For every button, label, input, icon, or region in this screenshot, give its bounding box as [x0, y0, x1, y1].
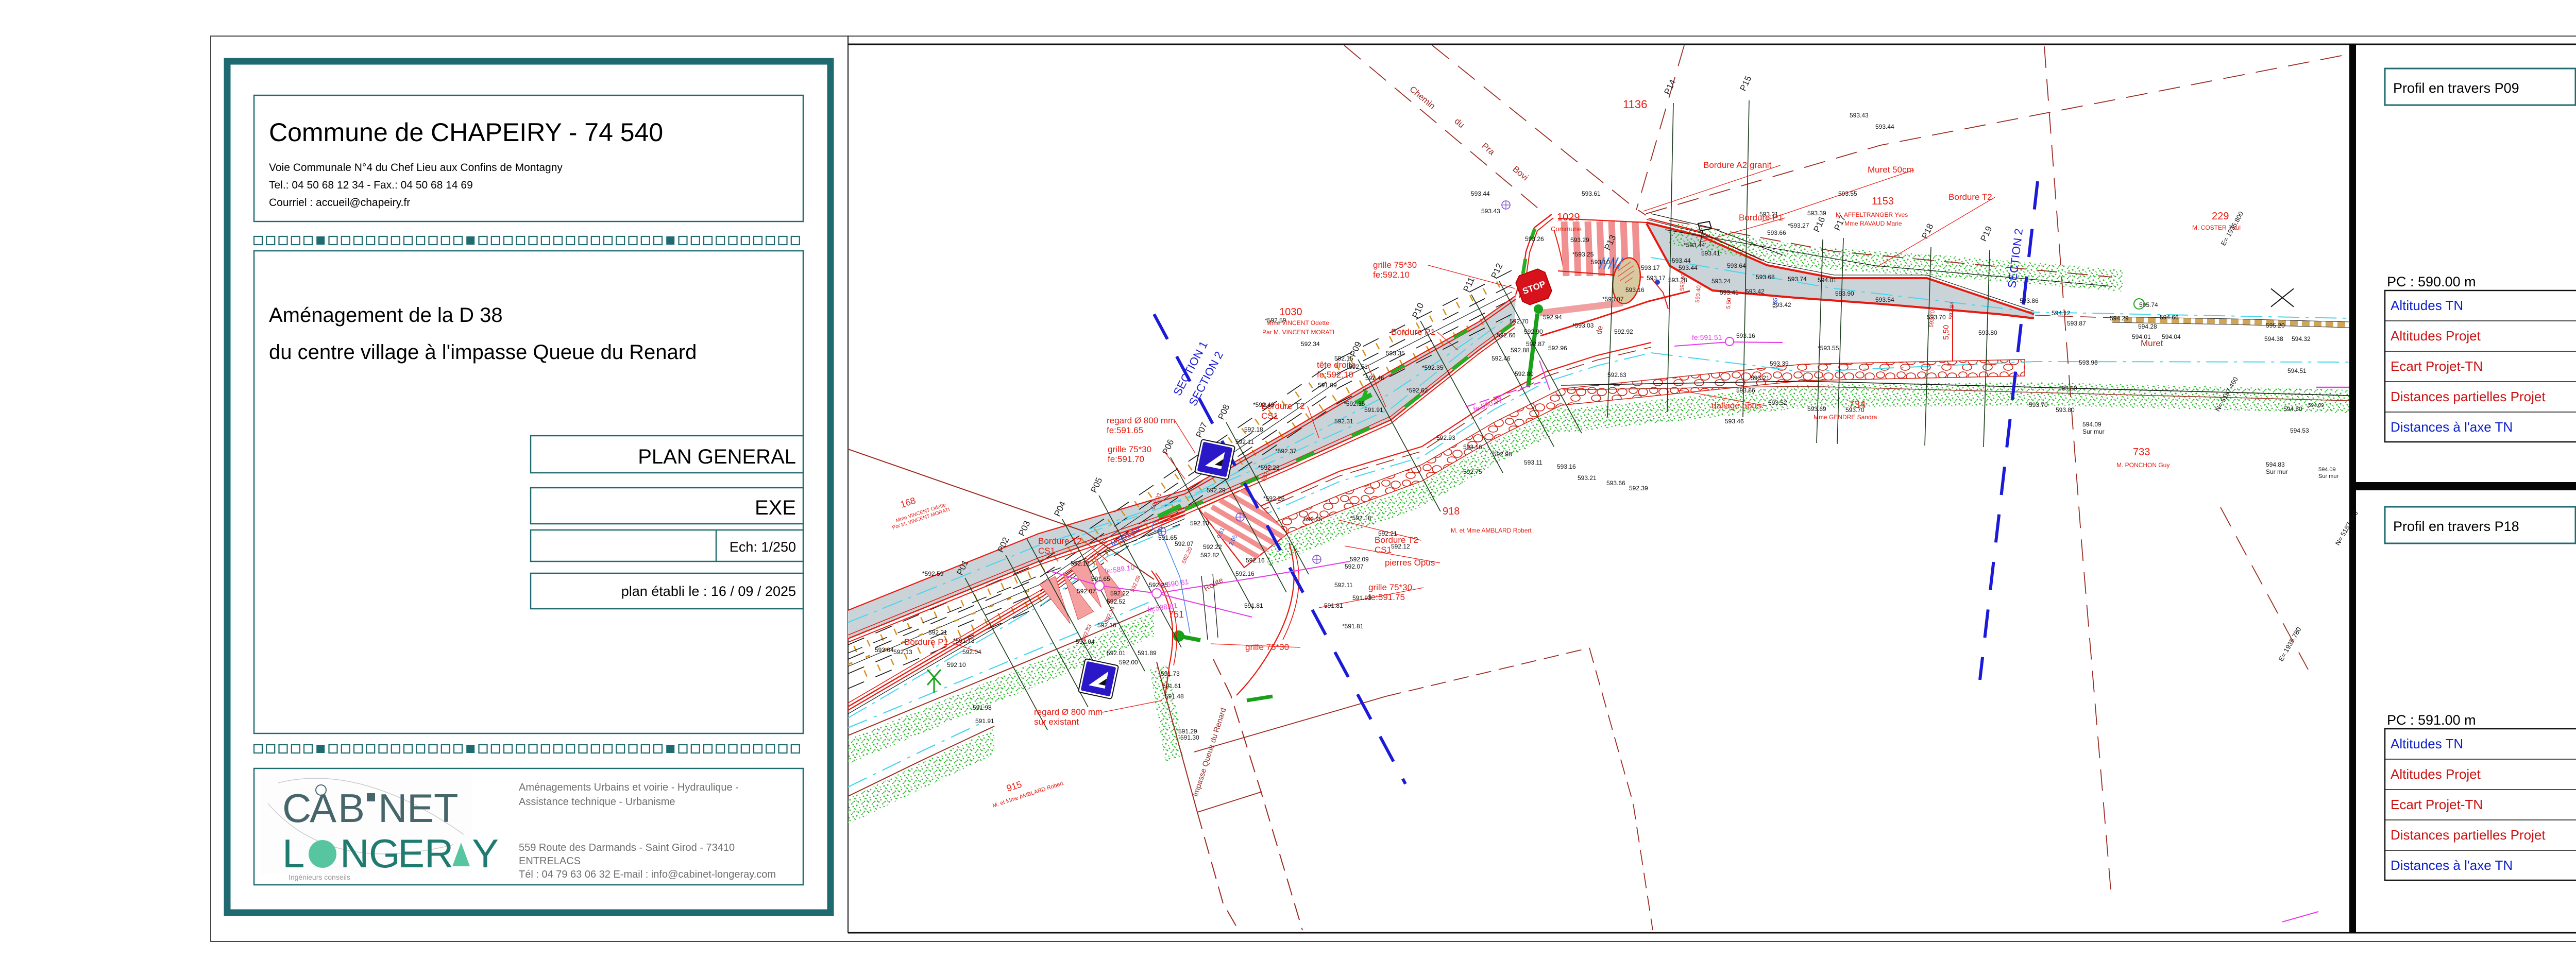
svg-text:Altitudes Projet: Altitudes Projet	[2391, 766, 2481, 782]
svg-text:592.25: 592.25	[1303, 516, 1323, 523]
svg-text:592.18: 592.18	[1244, 426, 1263, 433]
svg-text:Distances à l'axe TN: Distances à l'axe TN	[2391, 419, 2513, 435]
svg-text:Sur mur: Sur mur	[2266, 468, 2288, 475]
svg-text:593.29: 593.29	[1570, 236, 1589, 244]
svg-text:592.64: 592.64	[875, 646, 894, 654]
svg-text:Ingénieurs conseils: Ingénieurs conseils	[289, 873, 350, 881]
svg-text:591.65: 591.65	[1091, 575, 1110, 583]
svg-text:Profil en travers P09: Profil en travers P09	[2393, 80, 2519, 96]
svg-text:592.21: 592.21	[928, 629, 947, 636]
svg-text:592.22: 592.22	[1203, 543, 1222, 551]
svg-text:*591.81: *591.81	[1342, 623, 1364, 630]
svg-text:591.89: 591.89	[1138, 649, 1157, 657]
svg-text:593.41: 593.41	[1701, 250, 1720, 257]
svg-text:591.61: 591.61	[1162, 682, 1181, 690]
svg-text:593.87: 593.87	[2067, 320, 2086, 327]
svg-text:594.66: 594.66	[2160, 314, 2179, 321]
svg-text:733: 733	[2133, 447, 2150, 458]
svg-text:Aménagements Urbains et voirie: Aménagements Urbains et voirie - Hydraul…	[519, 782, 739, 793]
svg-text:E: E	[398, 831, 425, 876]
svg-text:1.65: 1.65	[1772, 298, 1779, 309]
svg-text:593.41: 593.41	[1720, 289, 1739, 296]
svg-text:Bordure T2: Bordure T2	[1038, 536, 1082, 546]
svg-text:592.11: 592.11	[1235, 438, 1254, 446]
svg-text:Distances à l'axe TN: Distances à l'axe TN	[2391, 858, 2513, 873]
svg-text:Bordure A2 granit: Bordure A2 granit	[1703, 160, 1772, 170]
svg-text:593.11: 593.11	[1524, 459, 1543, 466]
svg-text:593.66: 593.66	[1606, 480, 1625, 487]
svg-text:591.89: 591.89	[1318, 382, 1337, 389]
svg-text:Altitudes TN: Altitudes TN	[2391, 736, 2463, 751]
svg-text:593.16: 593.16	[1625, 286, 1645, 294]
svg-text:593.70: 593.70	[1845, 406, 1865, 414]
svg-text:Altitudes TN: Altitudes TN	[2391, 298, 2463, 313]
svg-text:591.81: 591.81	[1324, 602, 1343, 609]
svg-text:751: 751	[1168, 609, 1184, 620]
svg-text:G: G	[369, 831, 400, 876]
svg-text:592.07: 592.07	[1175, 540, 1194, 547]
svg-text:B: B	[338, 785, 365, 831]
svg-text:592.96: 592.96	[1548, 345, 1567, 352]
svg-text:591.81: 591.81	[1244, 602, 1263, 609]
svg-text:*591.73: *591.73	[953, 637, 975, 644]
svg-text:594.83: 594.83	[2266, 461, 2285, 468]
svg-text:593.16: 593.16	[1557, 463, 1576, 470]
svg-text:Mme GENDRE Sandra: Mme GENDRE Sandra	[1814, 414, 1877, 421]
svg-text:593.17: 593.17	[1641, 264, 1660, 271]
svg-text:PC : 591.00 m: PC : 591.00 m	[2387, 712, 2476, 728]
svg-text:594.09: 594.09	[2318, 467, 2336, 473]
svg-text:EXE: EXE	[755, 496, 796, 519]
svg-text:593.44: 593.44	[1471, 190, 1490, 197]
svg-text:fe:591.51: fe:591.51	[1692, 333, 1722, 341]
svg-text:591.98: 591.98	[973, 704, 992, 711]
svg-text:*593.55: *593.55	[1818, 345, 1839, 352]
svg-text:592.98: 592.98	[1493, 451, 1512, 458]
svg-text:*592.49: *592.49	[1253, 401, 1275, 408]
svg-text:Assistance technique - Urbanis: Assistance technique - Urbanisme	[519, 796, 675, 808]
svg-text:1136: 1136	[1623, 98, 1647, 111]
svg-text:594.50: 594.50	[2283, 405, 2302, 413]
svg-text:593.54: 593.54	[1875, 296, 1894, 303]
svg-text:Profil en travers P18: Profil en travers P18	[2393, 519, 2519, 534]
svg-text:592.10: 592.10	[1071, 560, 1090, 567]
svg-text:594.51: 594.51	[2287, 367, 2307, 374]
svg-text:*592.35: *592.35	[1422, 364, 1444, 371]
svg-text:594.32: 594.32	[2292, 335, 2311, 343]
svg-text:fe:592.10: fe:592.10	[1317, 370, 1353, 380]
svg-text:595.74: 595.74	[2139, 301, 2158, 309]
svg-text:593.70: 593.70	[2029, 401, 2048, 408]
svg-text:593.44: 593.44	[1875, 123, 1894, 130]
svg-text:CS1: CS1	[1038, 546, 1055, 556]
svg-text:grille 75*30: grille 75*30	[1245, 642, 1289, 652]
svg-text:592.07: 592.07	[1077, 588, 1096, 595]
svg-text:593.89: 593.89	[2058, 385, 2077, 392]
svg-text:593.43: 593.43	[1481, 208, 1500, 215]
svg-text:592.63: 592.63	[1607, 371, 1626, 379]
svg-text:Sur mur: Sur mur	[2318, 473, 2338, 480]
svg-text:fe:591.65: fe:591.65	[1107, 425, 1143, 435]
svg-text:594.29: 594.29	[2110, 315, 2129, 322]
svg-text:593.66: 593.66	[1736, 387, 1755, 394]
svg-text:593.86: 593.86	[2020, 297, 2039, 304]
svg-text:593.61: 593.61	[1582, 190, 1601, 197]
svg-text:592.46: 592.46	[1365, 374, 1384, 382]
svg-text:plan établi le : 16 / 09 / 20: plan établi le : 16 / 09 / 2025	[621, 584, 796, 599]
svg-text:T: T	[434, 785, 459, 831]
svg-text:592.00: 592.00	[1119, 659, 1138, 666]
svg-text:de: de	[1595, 325, 1605, 335]
svg-text:Bordure P1: Bordure P1	[1391, 327, 1435, 337]
svg-text:E: E	[407, 785, 434, 831]
svg-text:593.64: 593.64	[1727, 262, 1746, 269]
svg-text:593.52: 593.52	[1768, 399, 1787, 406]
svg-text:592.31: 592.31	[1334, 418, 1353, 425]
svg-text:Ecart Projet-TN: Ecart Projet-TN	[2391, 797, 2483, 812]
svg-text:*593.25: *593.25	[1572, 251, 1594, 258]
svg-text:229: 229	[2212, 211, 2229, 222]
svg-text:Distances partielles Projet: Distances partielles Projet	[2391, 827, 2546, 843]
svg-text:Sur mur: Sur mur	[2082, 428, 2105, 435]
svg-text:593.21: 593.21	[1759, 211, 1778, 218]
svg-text:L: L	[282, 831, 304, 876]
svg-text:regard Ø 800 mm: regard Ø 800 mm	[1107, 416, 1175, 425]
svg-text:*592.59: *592.59	[922, 570, 944, 577]
svg-text:593.44: 593.44	[1672, 257, 1691, 264]
svg-text:regard Ø 800 mm: regard Ø 800 mm	[1034, 707, 1103, 717]
svg-text:fe:591.70: fe:591.70	[1108, 454, 1144, 464]
svg-text:Voie Communale N°4 du Chef Lie: Voie Communale N°4 du Chef Lieu aux Conf…	[269, 162, 563, 174]
svg-text:593.21: 593.21	[1751, 374, 1770, 382]
svg-text:594.01: 594.01	[1818, 277, 1837, 284]
svg-text:593.26: 593.26	[1525, 235, 1544, 243]
svg-text:N: N	[340, 831, 369, 876]
svg-text:594.53: 594.53	[2290, 427, 2309, 434]
svg-text:Mme RAVAUD Marie: Mme RAVAUD Marie	[1844, 220, 1902, 227]
svg-text:592.21: 592.21	[1378, 530, 1397, 537]
svg-text:592.29: 592.29	[1207, 487, 1226, 494]
svg-text:592.11: 592.11	[1334, 581, 1353, 589]
svg-text:Y: Y	[472, 831, 499, 876]
svg-text:grille 75*30: grille 75*30	[1108, 444, 1151, 454]
svg-text:Altitudes Projet: Altitudes Projet	[2391, 328, 2481, 344]
svg-text:592.88: 592.88	[1511, 347, 1530, 354]
svg-text:592.66: 592.66	[1497, 332, 1516, 339]
svg-text:592.01: 592.01	[1107, 649, 1126, 657]
svg-text:592.22: 592.22	[1110, 590, 1129, 597]
svg-text:594.01: 594.01	[2132, 333, 2151, 340]
svg-text:594.12: 594.12	[2052, 310, 2071, 317]
svg-text:Muret 50cm: Muret 50cm	[1868, 165, 1914, 175]
svg-text:592.09: 592.09	[1350, 556, 1369, 563]
svg-text:Par M. VINCENT MORATI: Par M. VINCENT MORATI	[1262, 329, 1334, 336]
svg-text:592.34: 592.34	[1301, 340, 1320, 348]
svg-text:M. et Mme AMBLARD Robert: M. et Mme AMBLARD Robert	[1451, 527, 1532, 534]
svg-text:593.10: 593.10	[1591, 259, 1610, 266]
svg-text:Distances partielles Projet: Distances partielles Projet	[2391, 389, 2546, 404]
svg-text:593.55: 593.55	[1838, 190, 1857, 197]
svg-text:du centre village à l'impasse: du centre village à l'impasse Queue du R…	[269, 341, 697, 364]
svg-text:594.09: 594.09	[2308, 403, 2324, 408]
svg-text:592.16: 592.16	[1246, 557, 1265, 564]
svg-text:593.17: 593.17	[1647, 275, 1666, 282]
svg-text:592.80: 592.80	[1515, 370, 1534, 378]
svg-text:*592.37: *592.37	[1275, 448, 1297, 455]
svg-text:592.90: 592.90	[1524, 328, 1543, 335]
svg-text:593.96: 593.96	[2079, 359, 2098, 366]
svg-text:592.93: 592.93	[1436, 434, 1455, 441]
svg-text:593.68: 593.68	[1756, 273, 1775, 281]
svg-text:*593.07: *593.07	[1602, 296, 1624, 303]
svg-text:593.21: 593.21	[1578, 474, 1597, 482]
svg-text:sur existant: sur existant	[1034, 717, 1079, 727]
svg-text:*593.27: *593.27	[1788, 222, 1809, 229]
svg-text:593.90: 593.90	[1835, 290, 1854, 297]
svg-text:PC : 590.00 m: PC : 590.00 m	[2387, 274, 2476, 289]
svg-text:594.28: 594.28	[2138, 323, 2157, 330]
svg-text:592.70: 592.70	[1510, 318, 1529, 325]
svg-text:M. AFFELTRANGER Yves: M. AFFELTRANGER Yves	[1836, 211, 1908, 218]
svg-text:593.39: 593.39	[1770, 360, 1789, 367]
svg-text:591.30: 591.30	[1180, 734, 1199, 741]
svg-text:ENTRELACS: ENTRELACS	[519, 855, 581, 867]
svg-text:1153: 1153	[1872, 196, 1894, 207]
svg-text:592.10: 592.10	[947, 661, 966, 669]
svg-text:Ech: 1/250: Ech: 1/250	[730, 539, 796, 555]
svg-text:*593.44: *593.44	[1684, 242, 1705, 249]
svg-text:593.80: 593.80	[2056, 406, 2075, 414]
svg-text:918: 918	[1443, 506, 1460, 517]
svg-text:M. PONCHON Guy: M. PONCHON Guy	[2116, 461, 2170, 469]
svg-text:592.92: 592.92	[1614, 328, 1633, 335]
svg-text:PLAN GENERAL: PLAN GENERAL	[638, 446, 796, 468]
svg-text:592.46: 592.46	[1492, 355, 1511, 362]
svg-text:*593.03: *593.03	[1572, 322, 1594, 329]
svg-text:Aménagement de la D 38: Aménagement de la D 38	[269, 304, 503, 327]
svg-text:593.35: 593.35	[1386, 350, 1405, 357]
svg-text:5.50: 5.50	[1725, 298, 1733, 309]
svg-text:594.09: 594.09	[2082, 421, 2102, 428]
svg-text:1029: 1029	[1557, 212, 1580, 223]
svg-text:5,50: 5,50	[1942, 325, 1951, 340]
svg-text:CS1: CS1	[1261, 411, 1278, 421]
svg-text:593.39: 593.39	[1807, 210, 1826, 217]
svg-text:Bordure T2: Bordure T2	[1948, 192, 1992, 202]
svg-text:Tel.: 04 50 68 12 34 - Fax.:: Tel.: 04 50 68 12 34 - Fax.: 04 50 68 14…	[269, 179, 473, 191]
svg-text:CS1: CS1	[1375, 545, 1392, 555]
svg-text:593.46: 593.46	[1725, 418, 1744, 425]
svg-text:A: A	[310, 785, 336, 831]
svg-text:Commune de CHAPEIRY - 74 540: Commune de CHAPEIRY - 74 540	[269, 118, 663, 147]
svg-text:Ecart Projet-TN: Ecart Projet-TN	[2391, 358, 2483, 374]
svg-text:592.82: 592.82	[1200, 552, 1219, 559]
svg-text:592.94: 592.94	[1543, 314, 1562, 321]
svg-text:grille 75*30: grille 75*30	[1373, 260, 1417, 270]
svg-text:Bordure P1: Bordure P1	[904, 637, 948, 647]
svg-text:591.91: 591.91	[975, 717, 994, 725]
svg-text:C: C	[282, 785, 311, 831]
svg-text:594.04: 594.04	[2162, 333, 2181, 340]
svg-text:593.80: 593.80	[1978, 329, 1997, 336]
svg-text:594.38: 594.38	[2264, 335, 2283, 343]
svg-text:Tél : 04 79 63 06 32 E-mail: Tél : 04 79 63 06 32 E-mail : info@cabin…	[519, 869, 776, 880]
svg-text:591.91: 591.91	[1364, 406, 1383, 414]
svg-text:593.24: 593.24	[1711, 278, 1731, 285]
svg-text:593.74: 593.74	[1788, 276, 1807, 283]
svg-text:592.39: 592.39	[1629, 485, 1648, 492]
svg-text:592.75: 592.75	[1463, 468, 1482, 475]
svg-text:559 Route des Darmands - Saint: 559 Route des Darmands - Saint Girod - 7…	[519, 842, 735, 853]
svg-text:dallage opus: dallage opus	[1711, 401, 1761, 410]
svg-text:593.42: 593.42	[1745, 288, 1765, 295]
svg-text:593.16: 593.16	[1736, 332, 1755, 339]
svg-text:592.13: 592.13	[893, 648, 912, 656]
svg-text:*592.59: *592.59	[1265, 317, 1286, 324]
svg-text:593.69: 593.69	[1807, 405, 1826, 413]
svg-text:592.07: 592.07	[1345, 563, 1364, 570]
svg-text:591.73: 591.73	[1161, 670, 1180, 677]
svg-text:*592.35: *592.35	[1344, 400, 1365, 407]
svg-text:*592.18: *592.18	[1350, 515, 1371, 522]
svg-text:593.43: 593.43	[1850, 112, 1869, 119]
svg-text:N: N	[378, 785, 407, 831]
svg-text:591.93: 591.93	[1352, 594, 1371, 602]
svg-text:1030: 1030	[1279, 306, 1302, 318]
svg-text:592.25: 592.25	[1149, 581, 1168, 589]
svg-text:592.52: 592.52	[1107, 598, 1126, 605]
svg-text:Courriel : accueil@chapeiry.fr: Courriel : accueil@chapeiry.fr	[269, 197, 410, 209]
svg-text:fe:592.10: fe:592.10	[1373, 270, 1410, 280]
svg-text:592.10: 592.10	[1190, 520, 1209, 527]
svg-text:592.16: 592.16	[1235, 570, 1255, 577]
svg-text:R: R	[425, 831, 453, 876]
svg-text:592.04: 592.04	[962, 648, 981, 656]
svg-text:593.44: 593.44	[1679, 264, 1698, 271]
svg-text:pierres Opus: pierres Opus	[1385, 558, 1435, 568]
svg-text:593.66: 593.66	[1767, 229, 1786, 236]
svg-text:592.51: 592.51	[1349, 363, 1368, 370]
svg-text:593.16: 593.16	[1463, 443, 1482, 451]
svg-text:591.48: 591.48	[1165, 693, 1184, 700]
svg-text:592.12: 592.12	[1391, 543, 1410, 550]
svg-text:595.20: 595.20	[2266, 322, 2285, 329]
svg-text:*592.62: *592.62	[1406, 387, 1428, 394]
svg-text:Commune: Commune	[1551, 225, 1582, 233]
svg-text:*592.26: *592.26	[1263, 495, 1285, 502]
svg-text:592.15: 592.15	[1334, 355, 1353, 362]
